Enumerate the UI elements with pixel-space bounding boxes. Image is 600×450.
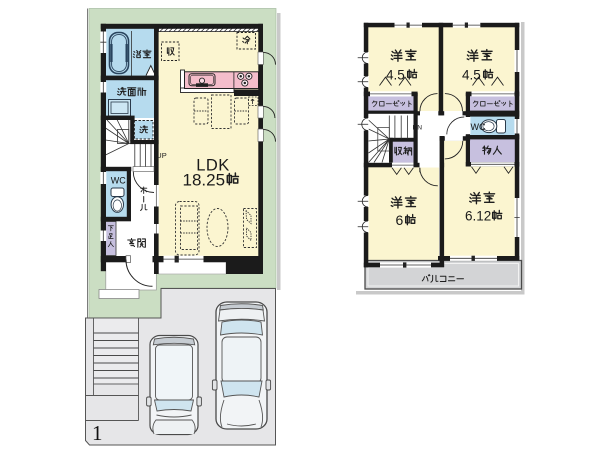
svg-text:DN: DN (413, 125, 423, 132)
svg-text:6.12: 6.12 (465, 209, 491, 224)
svg-text:WC: WC (471, 122, 486, 132)
svg-text:4.5: 4.5 (462, 68, 481, 83)
svg-text:6: 6 (396, 212, 404, 228)
svg-text:1: 1 (92, 421, 103, 445)
svg-text:WC: WC (111, 176, 126, 186)
svg-text:18.25: 18.25 (183, 170, 226, 189)
svg-text:4.5: 4.5 (386, 68, 405, 83)
